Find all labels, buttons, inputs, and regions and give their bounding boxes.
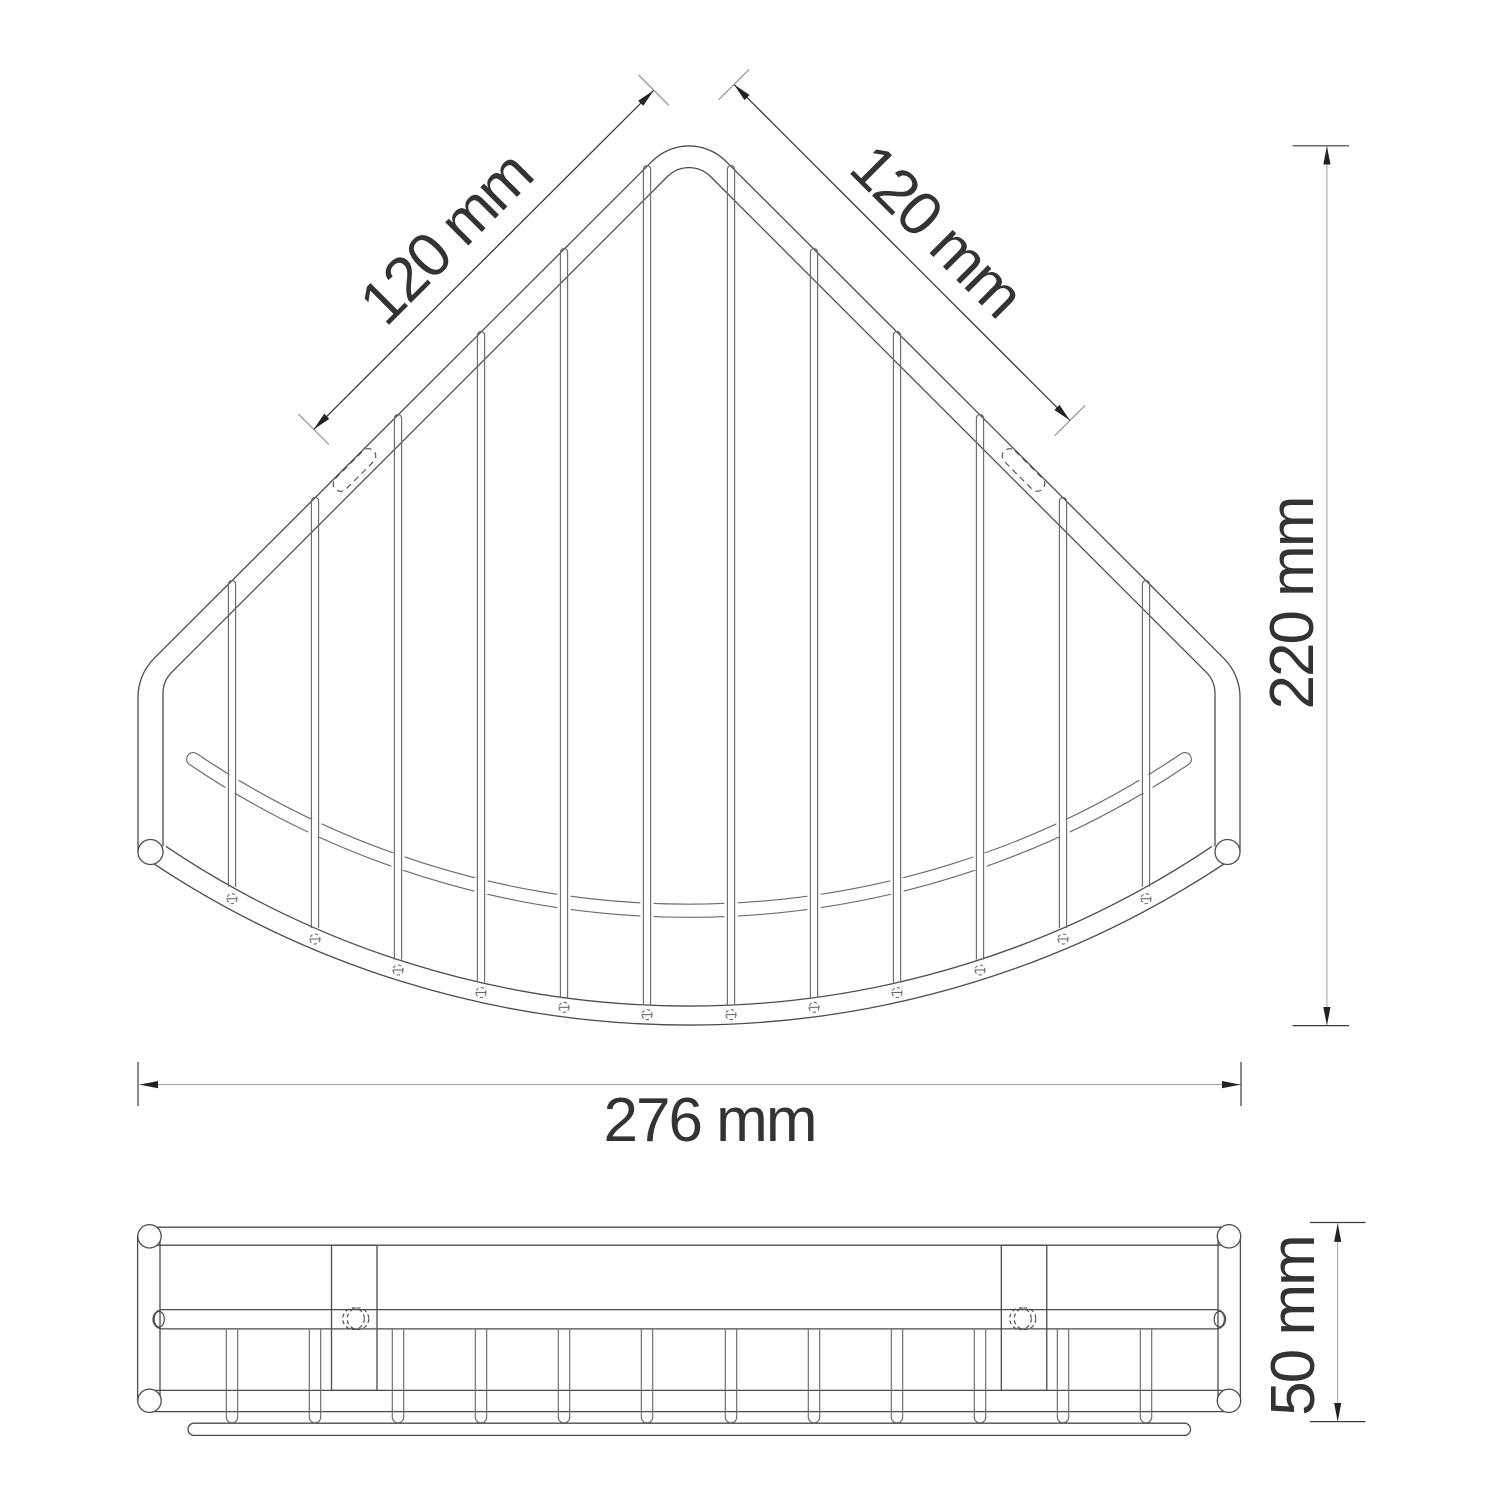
svg-text:276 mm: 276 mm <box>604 1086 816 1155</box>
svg-text:50 mm: 50 mm <box>1259 1236 1328 1415</box>
svg-text:220 mm: 220 mm <box>1258 498 1327 710</box>
